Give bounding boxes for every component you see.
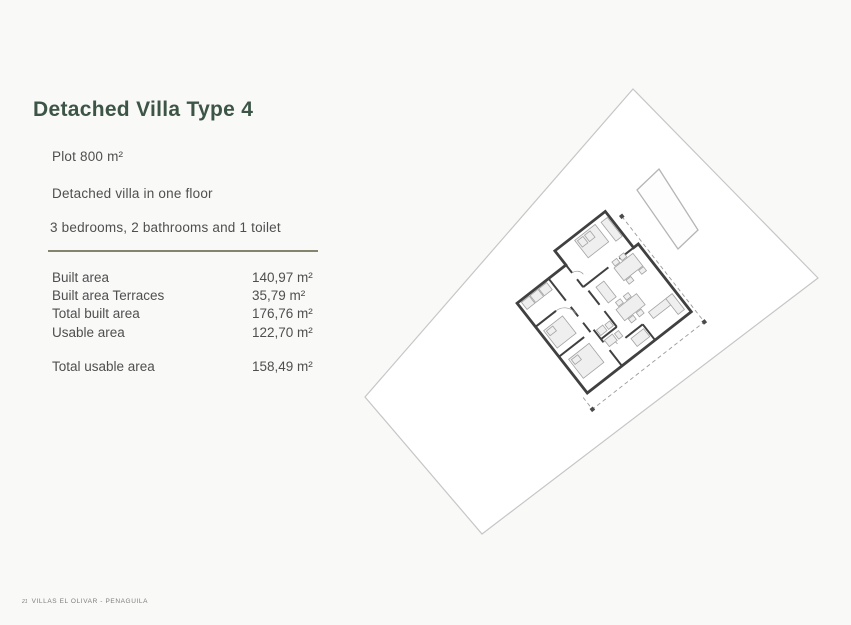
- section-divider: [48, 250, 318, 252]
- plot-size-text: Plot 800 m²: [52, 149, 123, 164]
- area-label: Built area Terraces: [52, 288, 252, 303]
- area-value: 35,79 m²: [252, 288, 320, 303]
- brochure-page: Detached Villa Type 4 Plot 800 m² Detach…: [0, 0, 851, 625]
- table-row: Built area Terraces 35,79 m²: [52, 286, 320, 304]
- area-label: Total built area: [52, 306, 252, 321]
- area-label: Total usable area: [52, 359, 252, 374]
- description-text: Detached villa in one floor: [52, 186, 213, 201]
- area-table: Built area 140,97 m² Built area Terraces…: [52, 268, 320, 376]
- footer: 21 VILLAS EL OLIVAR - PENAGUILA: [22, 598, 148, 605]
- page-number: 21: [22, 599, 28, 605]
- area-value: 158,49 m²: [252, 359, 320, 374]
- table-row-total: Total usable area 158,49 m²: [52, 358, 320, 376]
- area-value: 176,76 m²: [252, 306, 320, 321]
- area-value: 140,97 m²: [252, 270, 320, 285]
- table-row: Total built area 176,76 m²: [52, 305, 320, 323]
- area-label: Built area: [52, 270, 252, 285]
- table-row: Built area 140,97 m²: [52, 268, 320, 286]
- table-row: Usable area 122,70 m²: [52, 323, 320, 341]
- area-label: Usable area: [52, 325, 252, 340]
- brand-text: VILLAS EL OLIVAR - PENAGUILA: [32, 598, 149, 605]
- area-value: 122,70 m²: [252, 325, 320, 340]
- page-title: Detached Villa Type 4: [33, 98, 253, 122]
- rooms-text: 3 bedrooms, 2 bathrooms and 1 toilet: [50, 220, 281, 235]
